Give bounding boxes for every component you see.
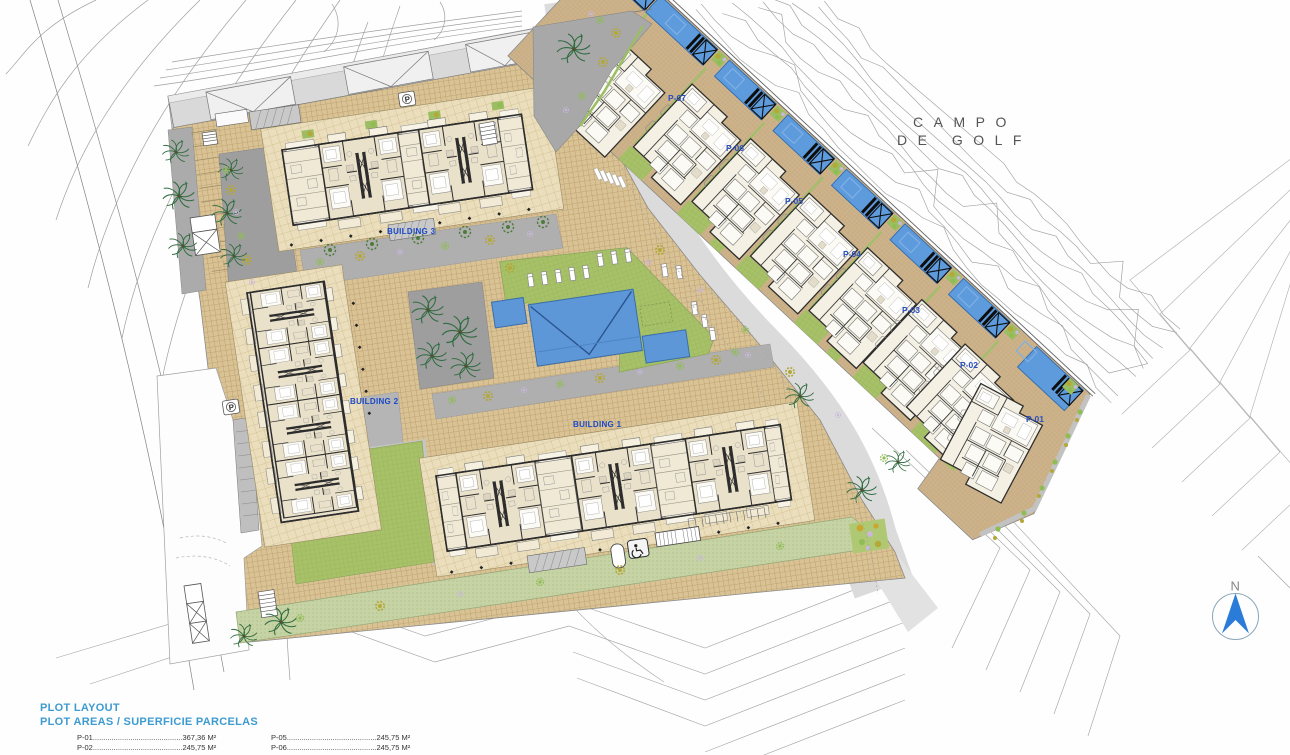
- svg-text:PLOT AREAS / SUPERFICIE PARCEL: PLOT AREAS / SUPERFICIE PARCELAS: [40, 716, 258, 728]
- svg-text:P-04: P-04: [843, 249, 861, 259]
- svg-text:P-05: P-05: [785, 196, 803, 206]
- svg-text:P-03: P-03: [902, 305, 920, 315]
- svg-text:DE GOLF: DE GOLF: [897, 132, 1032, 148]
- svg-text:P-05..........................: P-05....................................…: [271, 733, 411, 742]
- svg-text:P-06..........................: P-06....................................…: [271, 743, 411, 752]
- svg-text:BUILDING 1: BUILDING 1: [573, 420, 622, 429]
- svg-text:BUILDING 2: BUILDING 2: [350, 397, 399, 406]
- svg-text:PLOT LAYOUT: PLOT LAYOUT: [40, 702, 120, 714]
- svg-text:BUILDING 3: BUILDING 3: [387, 227, 436, 236]
- svg-text:P-01: P-01: [1026, 414, 1044, 424]
- svg-text:P-07: P-07: [668, 93, 686, 103]
- svg-text:CAMPO: CAMPO: [913, 114, 1017, 130]
- svg-text:N: N: [1231, 579, 1240, 594]
- svg-text:P-02: P-02: [960, 360, 978, 370]
- svg-text:P-02..........................: P-02....................................…: [77, 743, 217, 752]
- svg-text:P-06: P-06: [726, 143, 744, 153]
- svg-text:P-01..........................: P-01....................................…: [77, 733, 217, 742]
